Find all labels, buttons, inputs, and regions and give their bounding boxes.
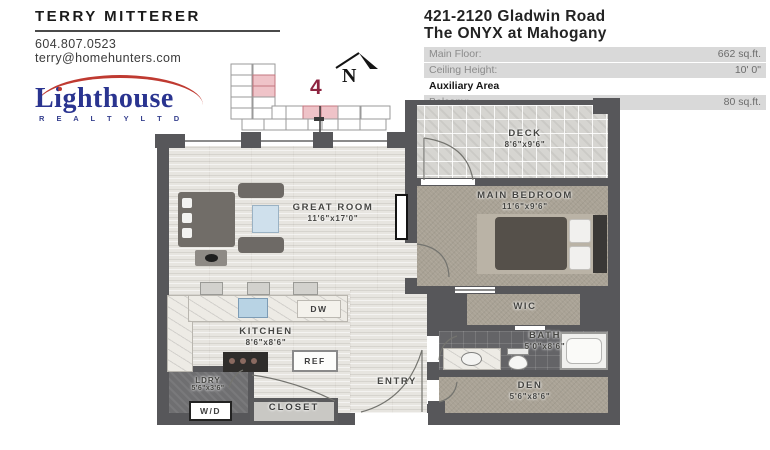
room-label-closet: CLOSET — [253, 403, 335, 414]
stove — [223, 352, 268, 372]
sofa-pillow — [182, 228, 192, 238]
floorplan-flyer: TERRY MITTERER 604.807.0523 terry@homehu… — [0, 0, 770, 450]
detail-label: Ceiling Height: — [429, 64, 497, 76]
wall-right — [608, 100, 620, 425]
room-name: KITCHEN — [206, 327, 326, 338]
room-label-laundry: LDRY 5'6"x3'6" — [168, 376, 248, 393]
room-label-great-room: GREAT ROOM 11'6"x17'0" — [253, 203, 413, 223]
room-label-main-bedroom: MAIN BEDROOM 11'6"x9'6" — [445, 191, 605, 211]
dishwasher-label: DW — [297, 300, 341, 318]
logo-dot-icon — [58, 87, 62, 91]
toilet-bowl — [508, 355, 528, 370]
wall-entry-den-step — [428, 401, 445, 425]
room-label-bath: BATH 5'0"x8'6" — [485, 331, 605, 351]
door-opening-entry — [355, 413, 428, 425]
bed-headboard — [593, 215, 607, 273]
sofa-pillow — [182, 198, 192, 208]
listing-address: 421-2120 Gladwin Road — [424, 8, 766, 25]
room-name: ENTRY — [337, 377, 457, 388]
room-label-entry: ENTRY — [337, 377, 457, 388]
room-label-deck: DECK 8'6"x9'6" — [465, 129, 585, 149]
room-name: DECK — [465, 129, 585, 140]
detail-value: 80 sq.ft. — [724, 96, 761, 108]
sofa-pillow — [182, 213, 192, 223]
wall-wic-block-right — [580, 294, 608, 325]
wall-wic-block-left — [439, 294, 467, 325]
bar-stool — [200, 282, 223, 295]
bed-pillow — [569, 246, 591, 270]
fridge: REF — [292, 350, 338, 372]
detail-row-main-floor: Main Floor: 662 sq.ft. — [424, 47, 766, 62]
room-dims: 11'6"x17'0" — [253, 214, 413, 223]
wall-bedroom-bottom — [405, 286, 610, 294]
room-label-wic: WIC — [485, 302, 565, 313]
room-name: WIC — [485, 302, 565, 313]
room-name: DEN — [470, 381, 590, 392]
window-top — [185, 136, 407, 146]
room-name: MAIN BEDROOM — [445, 191, 605, 202]
room-label-kitchen: KITCHEN 8'6"x8'6" — [206, 327, 326, 347]
detail-value: 10' 0" — [735, 64, 761, 76]
room-label-den: DEN 5'6"x8'6" — [470, 381, 590, 401]
washer-dryer: W/D — [189, 401, 232, 421]
detail-row-ceiling-height: Ceiling Height: 10' 0" — [424, 63, 766, 78]
room-name: BATH — [485, 331, 605, 342]
agent-name: TERRY MITTERER — [35, 8, 280, 32]
bed-duvet — [495, 217, 567, 270]
wall-deck-top — [405, 100, 610, 105]
room-dims: 8'6"x9'6" — [465, 140, 585, 149]
room-dims: 8'6"x8'6" — [206, 338, 326, 347]
room-dims: 5'6"x3'6" — [168, 385, 248, 393]
bath-sink — [461, 352, 482, 366]
compass-n-label: N — [342, 65, 357, 87]
door-opening-bath — [427, 336, 439, 362]
room-name: LDRY — [168, 376, 248, 385]
listing-building: The ONYX at Mahogany — [424, 25, 766, 42]
room-dims: 5'0"x8'6" — [485, 342, 605, 351]
room-name: GREAT ROOM — [253, 203, 413, 214]
detail-label: Main Floor: — [429, 48, 482, 60]
room-entry-floor — [350, 290, 427, 423]
armchair — [238, 237, 284, 253]
aux-area-header: Auxiliary Area — [424, 79, 766, 94]
north-arrow-icon: N — [333, 50, 381, 88]
unit-number: 4 — [310, 76, 322, 100]
detail-value: 662 sq.ft. — [718, 48, 761, 60]
listing-block: 421-2120 Gladwin Road The ONYX at Mahoga… — [424, 8, 766, 111]
decor-bowl — [205, 254, 218, 262]
bar-stool — [247, 282, 270, 295]
room-name: CLOSET — [253, 403, 335, 414]
wall-mullion — [241, 132, 261, 148]
door-opening-deck — [421, 179, 475, 185]
bed-pillow — [569, 219, 591, 243]
floor-plan-drawing: DW REF W/D GREAT ROOM 11'6"x17'0" DECK 8… — [155, 98, 625, 438]
armchair — [238, 183, 284, 198]
room-dims: 11'6"x9'6" — [445, 202, 605, 211]
wall-mullion — [313, 132, 333, 148]
window-bedroom-bottom — [455, 287, 495, 293]
bar-stool — [293, 282, 318, 295]
room-dims: 5'6"x8'6" — [470, 392, 590, 401]
kitchen-sink — [238, 298, 268, 318]
wall-top-left-corner — [155, 134, 185, 148]
wall-bath-den — [439, 370, 608, 377]
agent-phone: 604.807.0523 — [35, 37, 295, 51]
